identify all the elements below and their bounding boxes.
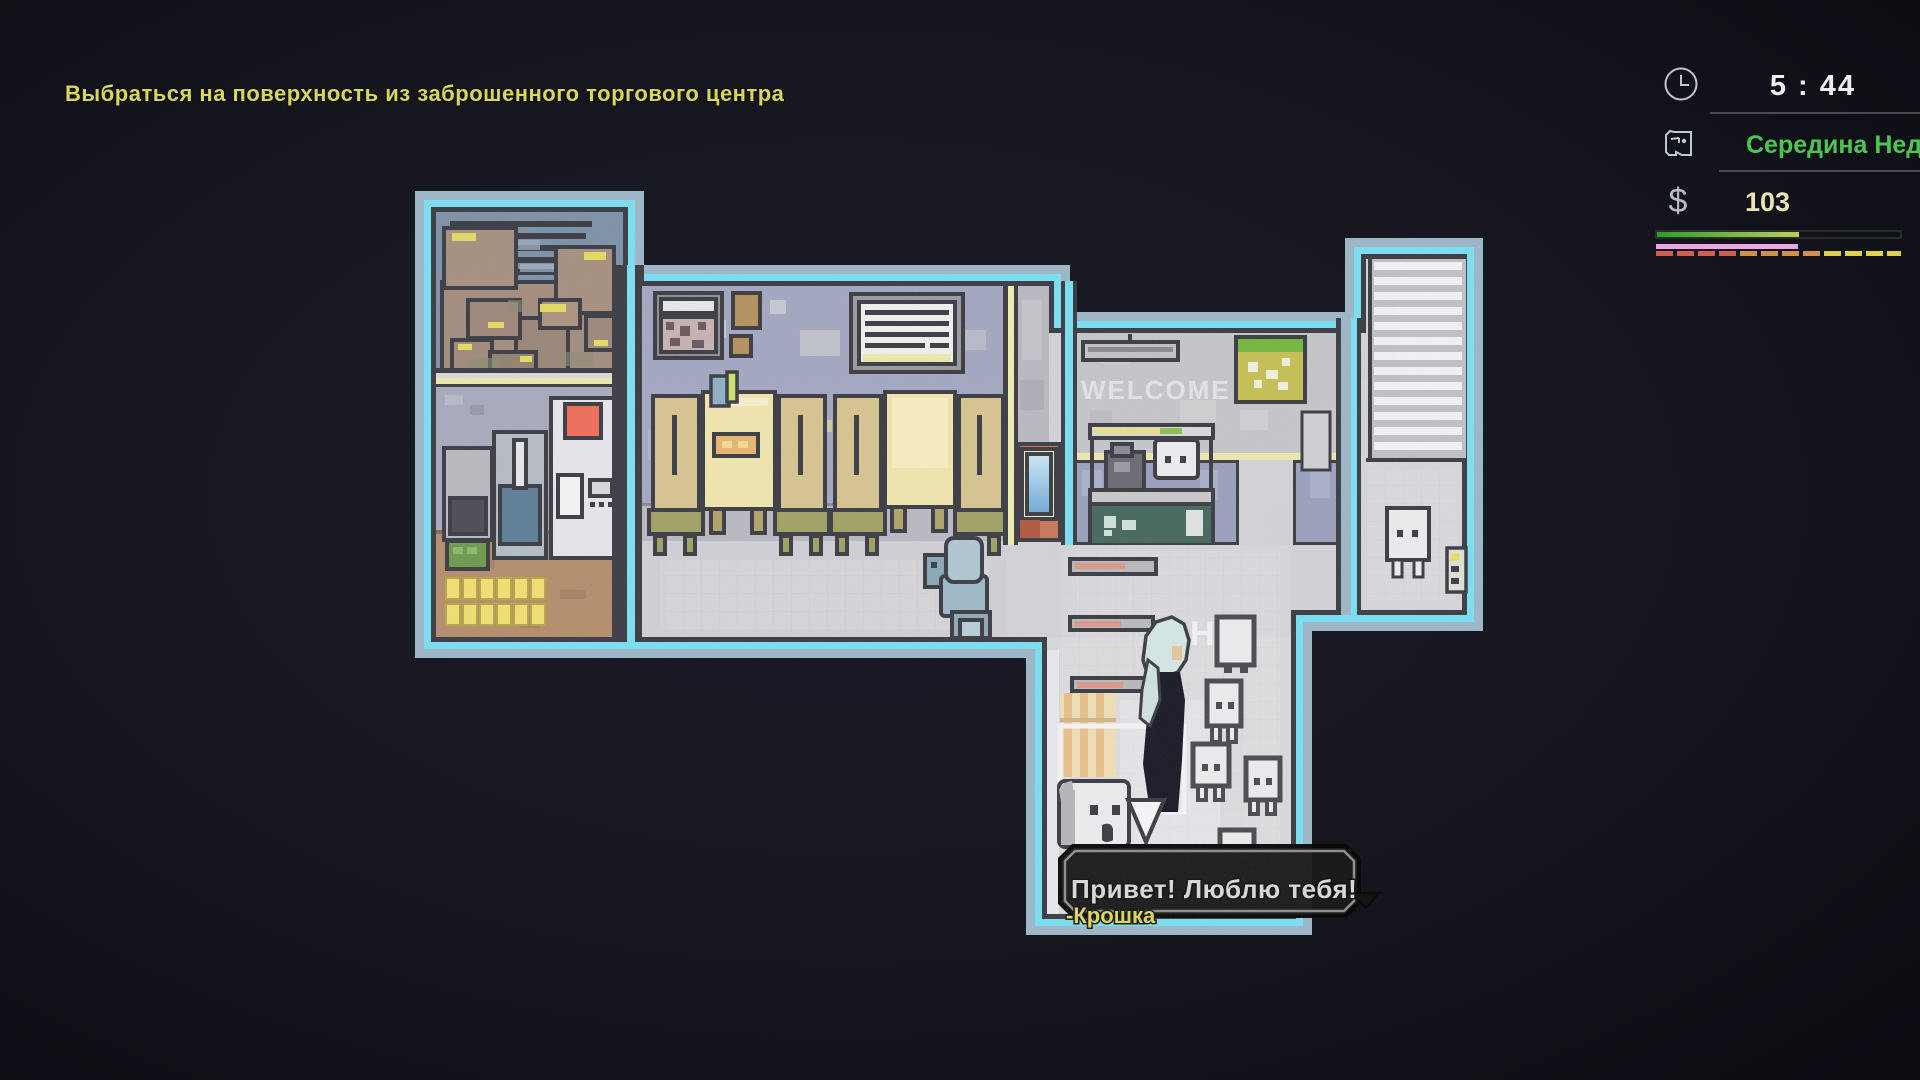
svg-text:5 : 44: 5 : 44 bbox=[1770, 70, 1856, 102]
svg-text:Выбраться на поверхность из за: Выбраться на поверхность из заброшенного… bbox=[65, 81, 785, 106]
svg-text:Середина Недели: Середина Недели bbox=[1746, 131, 1920, 159]
svg-text:$: $ bbox=[1669, 182, 1688, 220]
svg-text:103: 103 bbox=[1745, 187, 1790, 217]
